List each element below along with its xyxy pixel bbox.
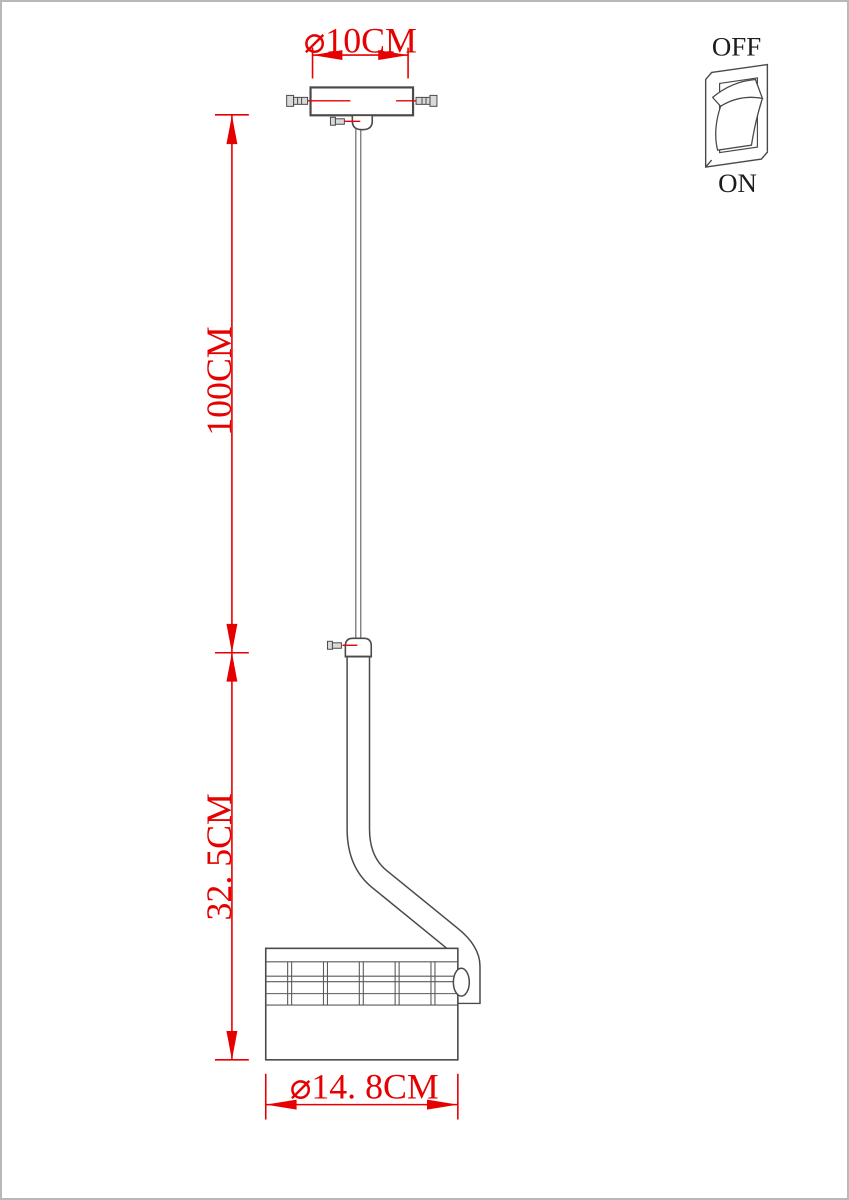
dimension-fixture-height: 32. 5CM xyxy=(199,653,249,1060)
cord-grip-dome xyxy=(330,115,372,129)
dimension-canopy-diameter: ⌀10CM xyxy=(304,21,417,79)
switch-off-label: OFF xyxy=(712,32,761,62)
ceiling-canopy xyxy=(287,87,437,129)
dimension-cord-length: 100CM xyxy=(199,115,249,653)
switch-on-label: ON xyxy=(718,168,757,198)
dimension-shade-diameter: ⌀14. 8CM xyxy=(266,1067,458,1120)
suspension-cable xyxy=(356,129,361,639)
canopy-diameter-label: ⌀10CM xyxy=(304,21,417,61)
rocker-switch-icon xyxy=(706,65,768,168)
lamp-shade xyxy=(266,948,470,1059)
shade-diameter-label: ⌀14. 8CM xyxy=(290,1067,439,1107)
pendant-lamp-diagram: ⌀10CM 100CM 32. 5CM ⌀14. 8CM xyxy=(2,2,847,1198)
fixture-height-label: 32. 5CM xyxy=(199,793,239,920)
stem-connector-knob xyxy=(453,968,469,996)
stem-top-cap xyxy=(327,638,371,656)
technical-drawing-canvas: ⌀10CM 100CM 32. 5CM ⌀14. 8CM xyxy=(0,0,849,1200)
rocker-switch-legend: OFF ON xyxy=(706,32,768,198)
cord-length-label: 100CM xyxy=(199,326,239,436)
